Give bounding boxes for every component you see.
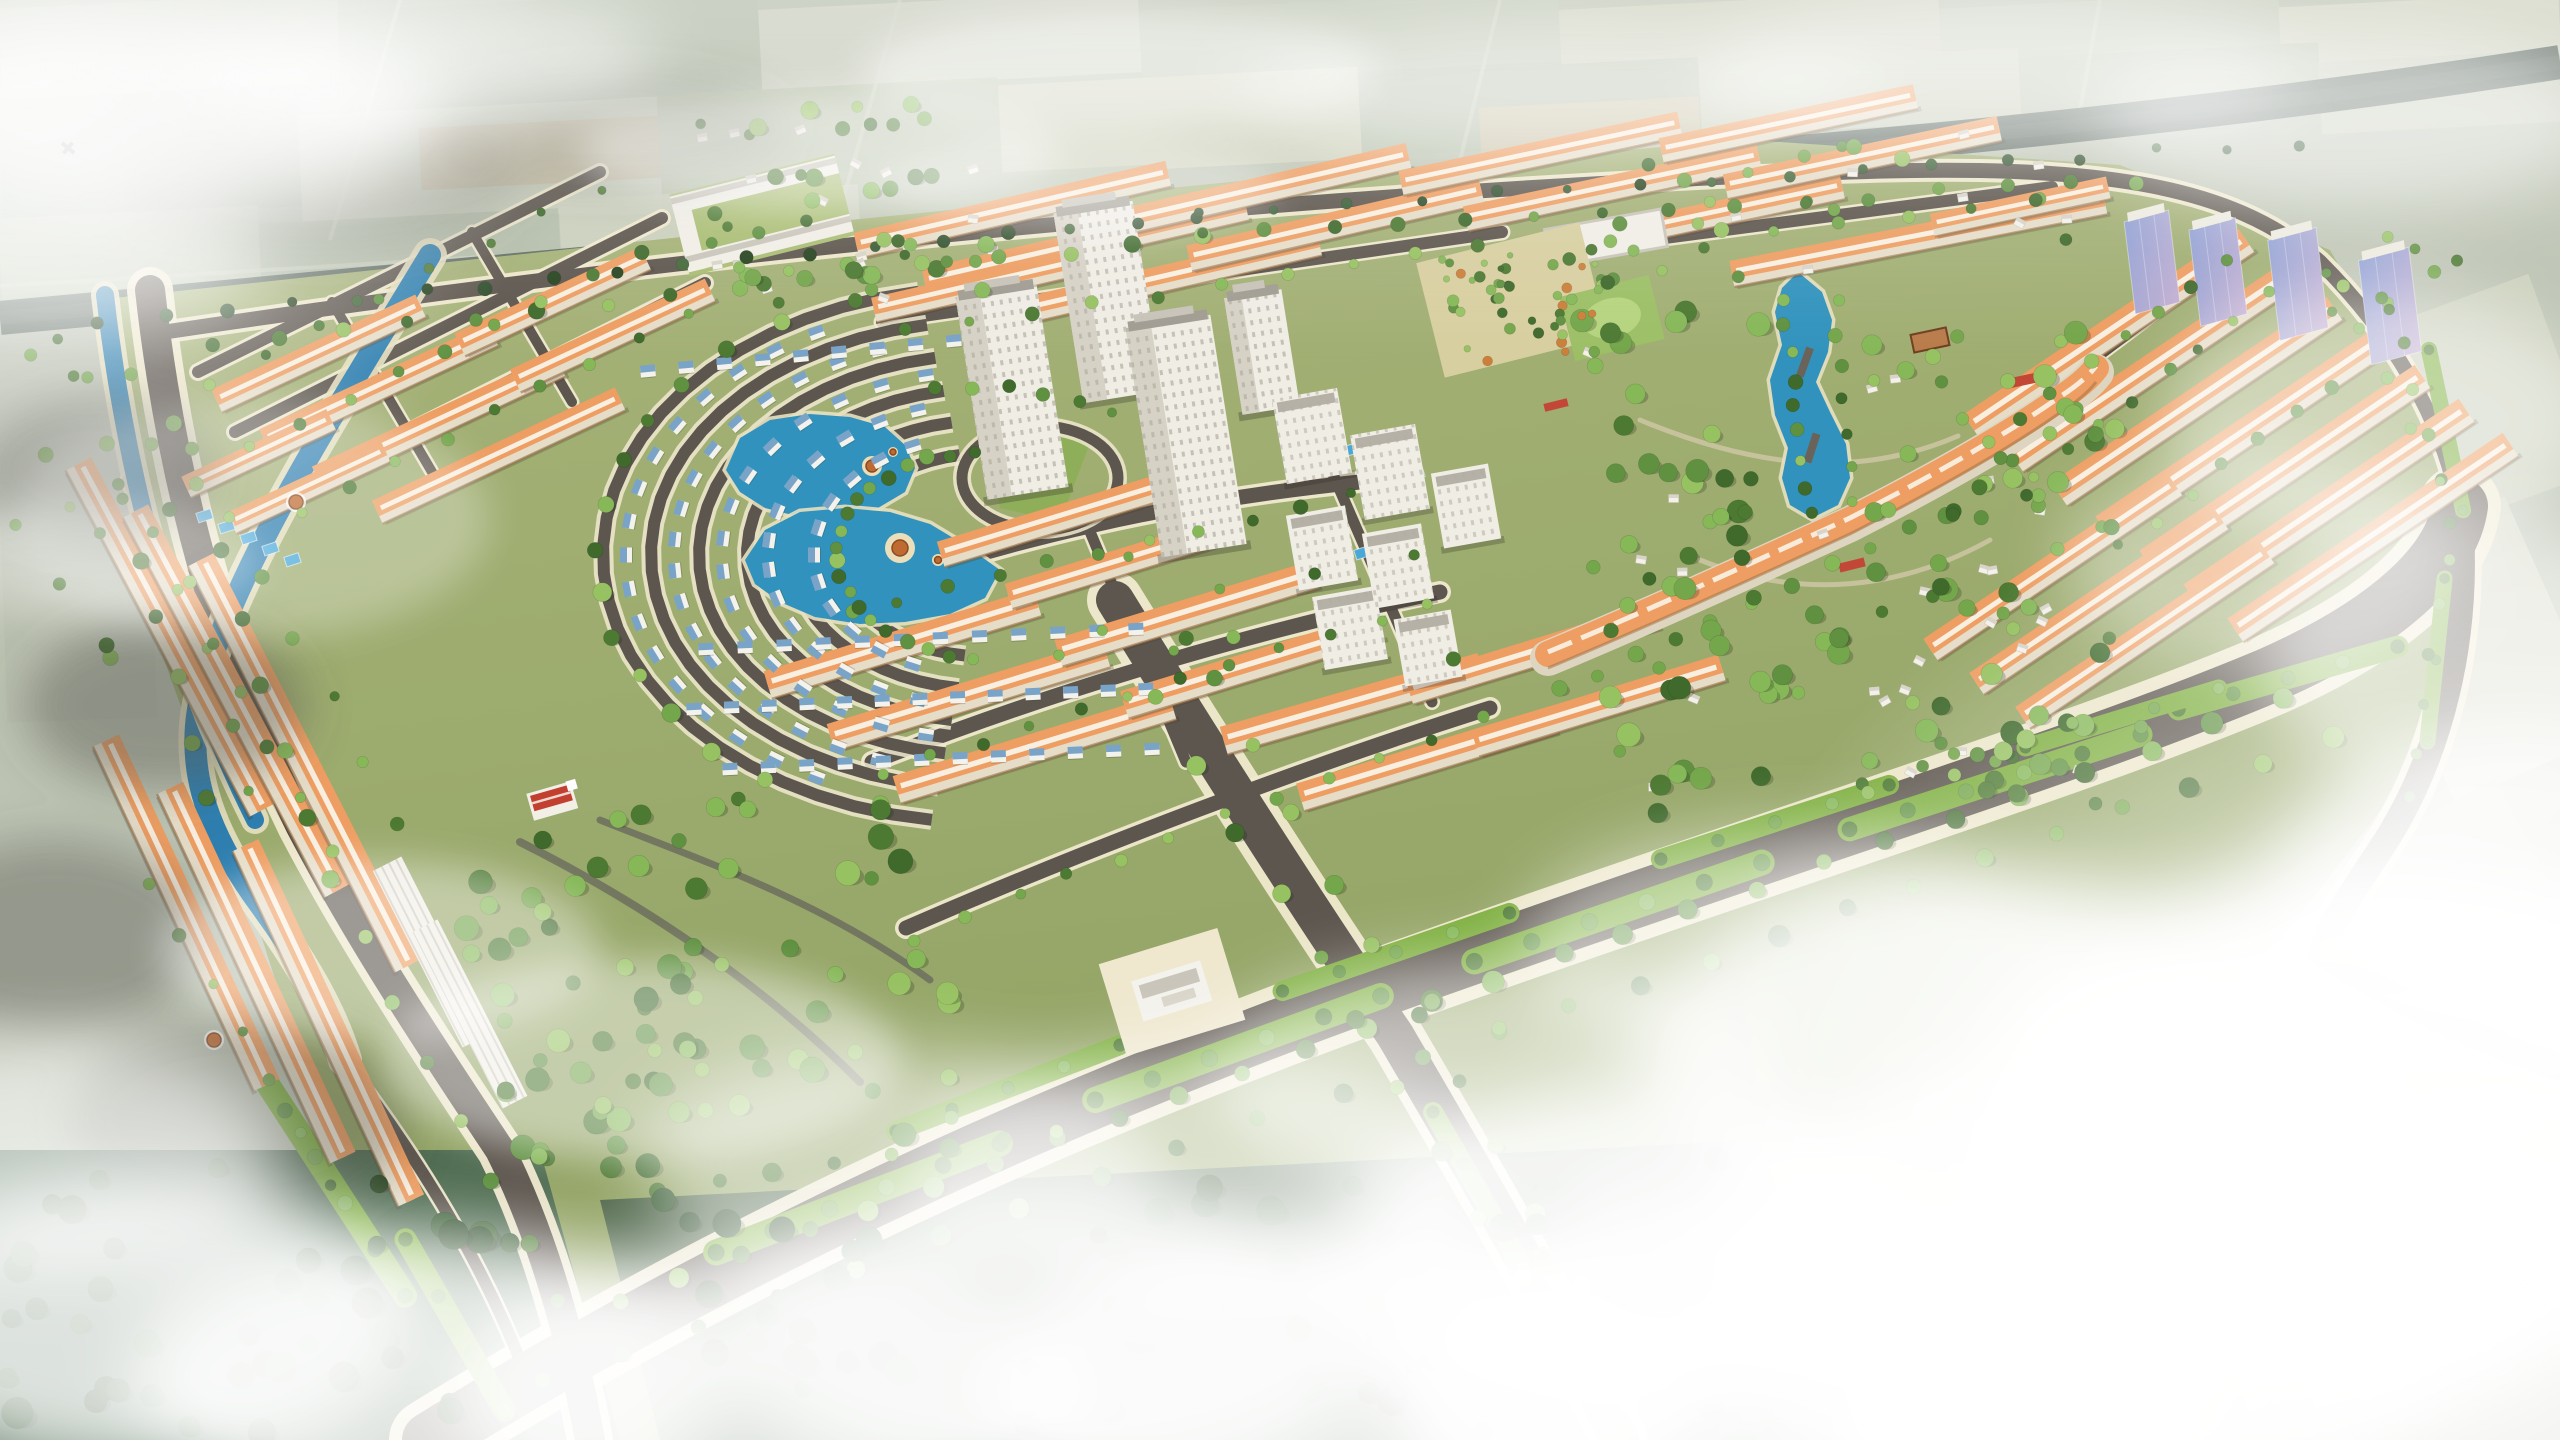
- atmospheric-haze: [0, 0, 2560, 1440]
- render-canvas: [0, 0, 2560, 1440]
- aerial-masterplan-render: [0, 0, 2560, 1440]
